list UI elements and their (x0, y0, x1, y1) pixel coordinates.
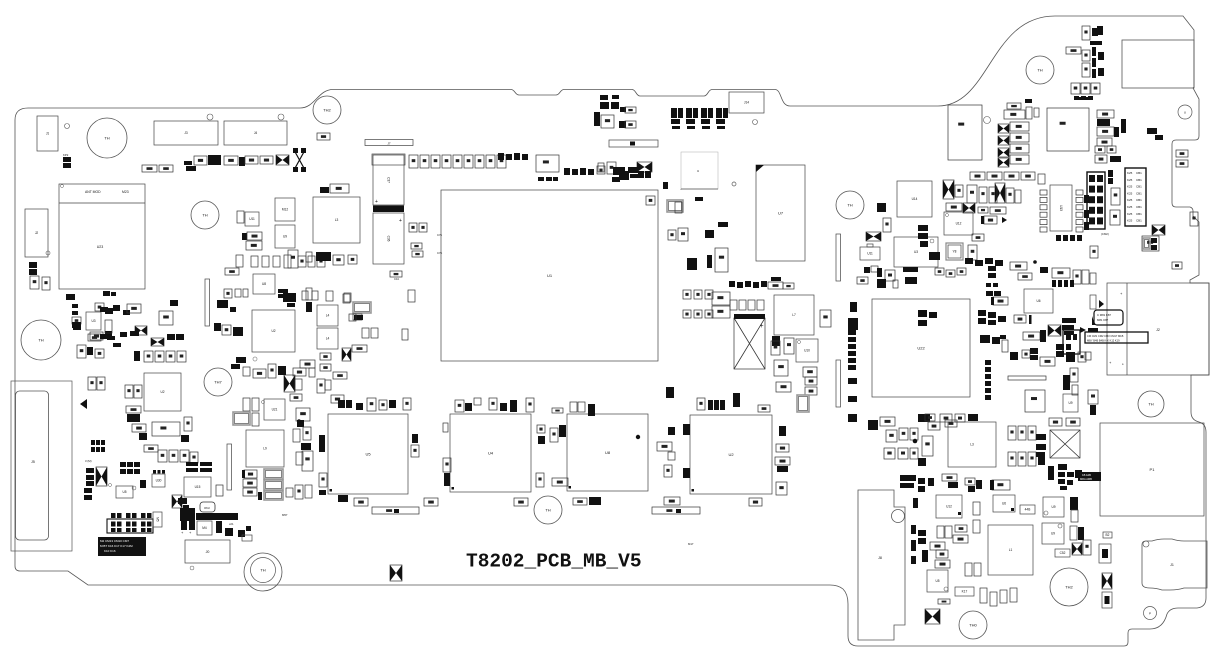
svg-text:J2: J2 (35, 231, 39, 235)
svg-text:L9: L9 (263, 447, 267, 451)
svg-text:U6: U6 (1036, 299, 1040, 303)
svg-text:ANT MOD: ANT MOD (85, 190, 101, 194)
svg-text:K25: K25 (1127, 205, 1133, 209)
svg-text:U9: U9 (1051, 532, 1055, 536)
svg-text:J14: J14 (744, 101, 749, 105)
svg-text:U2: U2 (271, 329, 275, 333)
svg-text:U22: U22 (917, 345, 925, 350)
svg-text:J3: J3 (184, 131, 188, 135)
svg-text:B2: B2 (1106, 533, 1110, 537)
svg-text:L3: L3 (335, 218, 339, 222)
svg-text:U14: U14 (912, 197, 918, 201)
svg-text:K25: K25 (1127, 219, 1133, 223)
svg-text:M81 K87: M81 K87 (1097, 318, 1109, 322)
svg-text:CB1: CB1 (1136, 212, 1142, 216)
svg-text:TH: TH (1148, 401, 1153, 406)
svg-text:U5: U5 (935, 579, 939, 583)
svg-text:U5: U5 (365, 451, 371, 456)
svg-text:TH7: TH7 (214, 379, 222, 384)
svg-text:U8: U8 (262, 282, 266, 286)
svg-text:U: U (1184, 111, 1186, 115)
svg-text:J5: J5 (31, 460, 35, 464)
svg-text:+: + (399, 218, 402, 224)
svg-text:CB1: CB1 (1136, 191, 1142, 195)
svg-text:K25: K25 (1127, 198, 1133, 202)
svg-text:P1: P1 (1150, 467, 1156, 472)
svg-text:CM CM1 CM2 CM3 CM17 M1B: CM CM1 CM2 CM3 CM17 M1B (1087, 334, 1124, 338)
svg-text:O6U: O6U (204, 506, 210, 510)
svg-text:M2: M2 (63, 165, 67, 169)
svg-text:TH: TH (38, 337, 43, 342)
svg-text:CB1: CB1 (1136, 171, 1142, 175)
svg-text:L1: L1 (1009, 548, 1013, 552)
svg-text:U30: U30 (156, 479, 162, 483)
svg-text:C7k: C7k (437, 233, 443, 237)
svg-text:M57: M57 (282, 513, 288, 517)
svg-text:KP2: KP2 (63, 153, 69, 157)
svg-text:MBY B4B B4B K-K K12 K19: MBY B4B B4B K-K K12 K19 (1087, 339, 1120, 343)
svg-text:K25: K25 (1127, 178, 1133, 182)
svg-text:U21: U21 (272, 408, 278, 412)
svg-text:(CM2): (CM2) (1101, 232, 1109, 236)
svg-text:J1: J1 (46, 132, 50, 136)
svg-text:CB1: CB1 (1136, 178, 1142, 182)
svg-text:L3: L3 (970, 443, 974, 447)
svg-text:TH: TH (847, 202, 852, 207)
svg-text:L7: L7 (792, 313, 796, 317)
svg-text:U10: U10 (804, 349, 810, 353)
svg-text:U6: U6 (1002, 502, 1006, 506)
svg-text:M5: M5 (155, 517, 159, 522)
svg-text:U12: U12 (946, 505, 952, 509)
svg-text:M:BT K16 K17 K17 K2M: M:BT K16 K17 K17 K2M (100, 544, 133, 548)
svg-text:U: U (697, 169, 699, 173)
svg-text:44B: 44B (1025, 508, 1031, 512)
svg-text:U7: U7 (778, 210, 784, 215)
svg-text:U8: U8 (605, 450, 611, 455)
svg-text:U11: U11 (867, 252, 873, 256)
svg-text:C36: C36 (386, 236, 390, 242)
svg-text:T8202_PCB_MB_V5: T8202_PCB_MB_V5 (466, 551, 642, 573)
svg-text:Y8: Y8 (953, 250, 957, 254)
svg-text:M2 CM13 CM10 CM7: M2 CM13 CM10 CM7 (100, 539, 129, 543)
svg-text:TH: TH (1037, 67, 1042, 72)
svg-text:J7: J7 (387, 142, 391, 146)
svg-text:M12: M12 (282, 208, 288, 212)
svg-text:K25: K25 (1127, 171, 1133, 175)
svg-text:M23: M23 (122, 190, 129, 194)
svg-text:C37: C37 (386, 177, 390, 183)
svg-text:U11: U11 (249, 217, 255, 221)
svg-text:C M81 K87: C M81 K87 (1097, 313, 1111, 317)
svg-text:CB1: CB1 (1136, 219, 1142, 223)
svg-text:K10 K16: K10 K16 (104, 549, 116, 553)
svg-text:U9: U9 (1068, 401, 1072, 405)
svg-text:TH2: TH2 (323, 107, 331, 112)
svg-text:TH2: TH2 (1065, 584, 1073, 589)
svg-text:U13: U13 (1059, 205, 1063, 211)
svg-text:U15: U15 (195, 485, 201, 489)
svg-text:TH: TH (104, 135, 109, 140)
svg-text:J4: J4 (254, 131, 258, 135)
svg-text:U23: U23 (97, 245, 104, 249)
svg-text:CB1: CB1 (1136, 198, 1142, 202)
svg-text:C52: C52 (1060, 551, 1066, 555)
svg-text:J2: J2 (1156, 328, 1160, 332)
svg-text:K25: K25 (1127, 185, 1133, 189)
svg-text:TH: TH (202, 212, 207, 217)
svg-text:CB1: CB1 (1136, 185, 1142, 189)
svg-text:+: + (375, 199, 378, 205)
svg-text:3 (M): 3 (M) (85, 459, 92, 463)
svg-text:U3: U3 (91, 319, 95, 323)
svg-text:M17: M17 (688, 542, 694, 546)
svg-text:x21: x21 (229, 522, 234, 526)
svg-text:U3: U3 (914, 250, 918, 254)
svg-text:U1: U1 (547, 273, 553, 278)
svg-text:L4: L4 (326, 314, 330, 318)
svg-text:U9: U9 (283, 235, 287, 239)
svg-text:K25: K25 (1127, 191, 1133, 195)
svg-text:K25: K25 (1127, 212, 1133, 216)
svg-text:J8: J8 (878, 556, 882, 560)
svg-text:U2: U2 (728, 452, 734, 457)
svg-text:+: + (760, 324, 764, 330)
svg-text:U5: U5 (122, 490, 126, 494)
svg-text:TH: TH (545, 507, 550, 512)
svg-text:U4: U4 (488, 450, 494, 455)
svg-text:CB1: CB1 (1136, 205, 1142, 209)
svg-text:C1b: C1b (394, 277, 400, 281)
svg-text:U9: U9 (1051, 505, 1055, 509)
svg-text:L4: L4 (326, 337, 330, 341)
svg-text:J0: J0 (206, 550, 210, 554)
svg-text:J9: J9 (605, 105, 608, 109)
svg-text:K17: K17 (962, 590, 968, 594)
svg-text:U2: U2 (160, 390, 164, 394)
svg-text:TH0: TH0 (969, 622, 977, 627)
svg-text:J1: J1 (1170, 563, 1174, 567)
svg-text:TH: TH (260, 567, 265, 572)
svg-text:U12: U12 (956, 222, 962, 226)
svg-text:M4: M4 (202, 526, 207, 530)
svg-text:C7b: C7b (437, 251, 443, 255)
svg-text:P: P (1149, 612, 1151, 616)
